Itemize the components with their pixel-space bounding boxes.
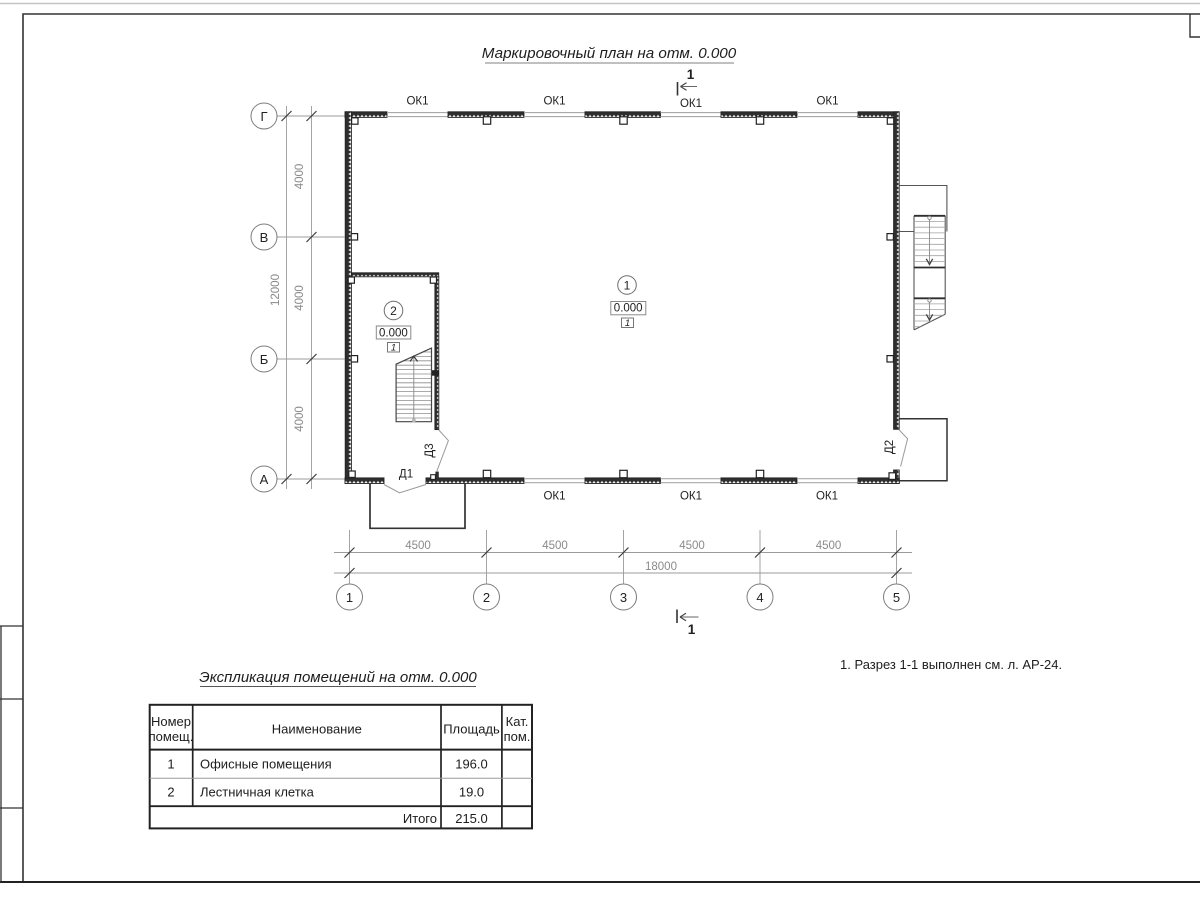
svg-text:Д1: Д1 bbox=[399, 469, 413, 481]
svg-text:ОК1: ОК1 bbox=[680, 98, 702, 110]
svg-text:В: В bbox=[260, 230, 269, 245]
svg-text:1: 1 bbox=[391, 342, 396, 353]
svg-text:2: 2 bbox=[483, 590, 490, 605]
svg-text:ОК1: ОК1 bbox=[543, 96, 565, 108]
svg-text:Площадь: Площадь bbox=[443, 722, 500, 737]
svg-text:19.0: 19.0 bbox=[459, 785, 484, 800]
svg-text:Г: Г bbox=[260, 109, 267, 124]
svg-text:помещ.: помещ. bbox=[149, 729, 194, 744]
svg-text:1: 1 bbox=[624, 279, 631, 293]
svg-text:0.000: 0.000 bbox=[614, 303, 643, 315]
svg-text:4500: 4500 bbox=[542, 540, 568, 552]
svg-text:пом.: пом. bbox=[504, 729, 531, 744]
svg-text:2: 2 bbox=[167, 785, 174, 800]
svg-text:196.0: 196.0 bbox=[455, 757, 488, 772]
svg-text:Офисные помещения: Офисные помещения bbox=[200, 757, 332, 772]
svg-text:18000: 18000 bbox=[645, 561, 677, 573]
svg-text:Наименование: Наименование bbox=[272, 722, 362, 737]
svg-text:Кат.: Кат. bbox=[506, 714, 529, 729]
svg-text:Маркировочный план на отм. 0.0: Маркировочный план на отм. 0.000 bbox=[482, 45, 737, 62]
svg-text:4000: 4000 bbox=[294, 164, 306, 190]
svg-text:1: 1 bbox=[688, 622, 696, 637]
svg-text:Номер: Номер bbox=[151, 714, 191, 729]
svg-text:4000: 4000 bbox=[294, 406, 306, 432]
svg-text:2: 2 bbox=[390, 304, 397, 318]
svg-text:Лестничная клетка: Лестничная клетка bbox=[200, 785, 315, 800]
svg-text:Б: Б bbox=[260, 352, 269, 367]
svg-text:4500: 4500 bbox=[679, 540, 705, 552]
svg-text:1: 1 bbox=[687, 67, 695, 82]
svg-text:4: 4 bbox=[756, 590, 763, 605]
svg-text:ОК1: ОК1 bbox=[816, 96, 838, 108]
svg-text:Итого: Итого bbox=[403, 811, 437, 826]
svg-text:4500: 4500 bbox=[816, 540, 842, 552]
svg-text:4000: 4000 bbox=[294, 285, 306, 311]
svg-text:12000: 12000 bbox=[270, 274, 282, 306]
svg-text:4500: 4500 bbox=[405, 540, 431, 552]
svg-text:А: А bbox=[260, 472, 269, 487]
svg-text:1. Разрез 1-1 выполнен см. л.: 1. Разрез 1-1 выполнен см. л. АР-24. bbox=[840, 657, 1062, 672]
svg-text:Экспликация помещений на отм.: Экспликация помещений на отм. 0.000 bbox=[199, 669, 477, 686]
svg-text:ОК1: ОК1 bbox=[543, 491, 565, 503]
svg-text:ОК1: ОК1 bbox=[680, 491, 702, 503]
svg-text:1: 1 bbox=[346, 590, 353, 605]
svg-text:Д3: Д3 bbox=[424, 443, 436, 457]
svg-text:1: 1 bbox=[625, 318, 630, 329]
svg-text:ОК1: ОК1 bbox=[406, 96, 428, 108]
svg-text:ОК1: ОК1 bbox=[816, 491, 838, 503]
svg-text:Д2: Д2 bbox=[884, 440, 896, 454]
svg-text:5: 5 bbox=[893, 590, 900, 605]
svg-text:1: 1 bbox=[167, 757, 174, 772]
svg-text:0.000: 0.000 bbox=[379, 327, 408, 339]
svg-text:215.0: 215.0 bbox=[455, 811, 488, 826]
svg-text:3: 3 bbox=[620, 590, 627, 605]
